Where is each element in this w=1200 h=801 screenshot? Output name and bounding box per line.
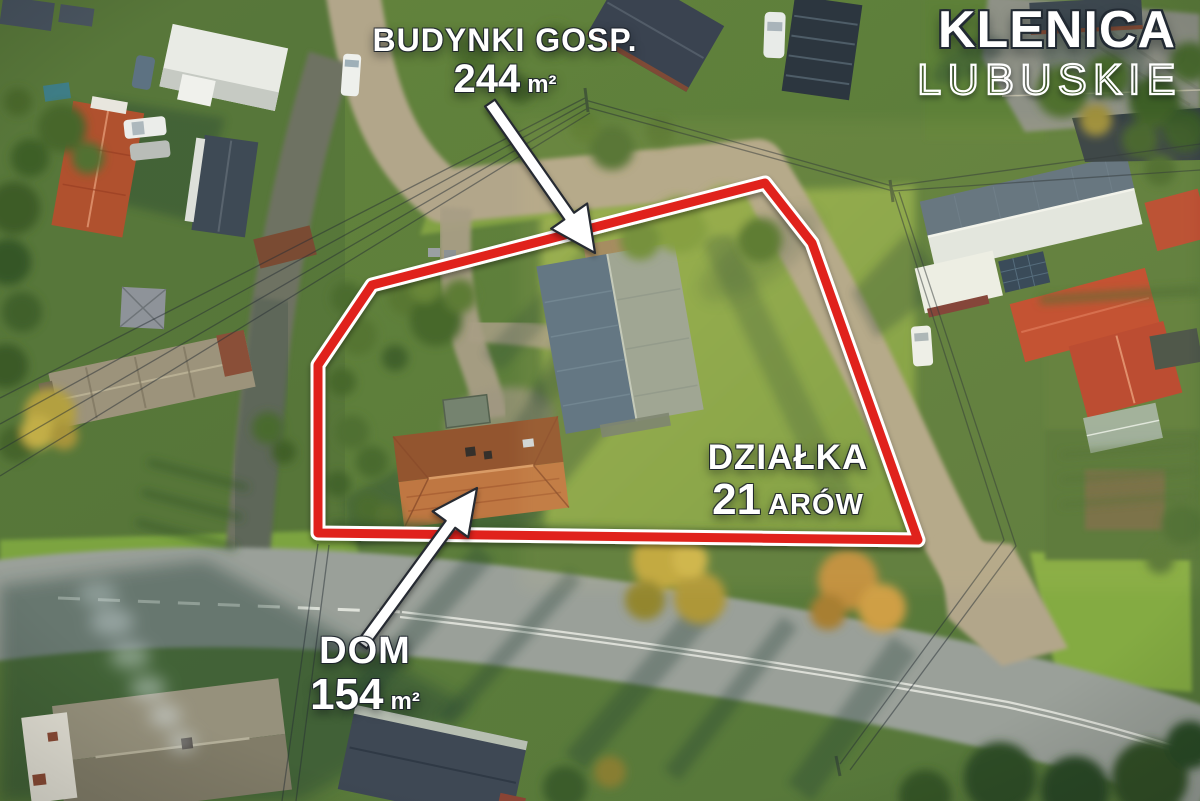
brand-logo: KLENICA LUBUSKIE (917, 4, 1176, 103)
house-area-unit: m² (391, 689, 420, 714)
outbuildings-area-unit: m² (527, 72, 556, 97)
plot-area-value: 21 (712, 477, 761, 523)
outbuildings-label: BUDYNKI GOSP. 244 m² (348, 24, 662, 100)
house-area-value: 154 (310, 672, 383, 718)
brand-logo-title: KLENICA (917, 4, 1176, 57)
vignette (0, 0, 1200, 801)
plot-label-text: DZIAŁKA (688, 440, 888, 477)
brand-logo-subtitle: LUBUSKIE (917, 59, 1182, 103)
house-label-text: DOM (276, 632, 454, 672)
outbuildings-label-text: BUDYNKI GOSP. (348, 24, 662, 58)
outbuildings-area-value: 244 (453, 58, 520, 100)
aerial-photo-scene (0, 0, 1200, 801)
plot-label: DZIAŁKA 21 ARÓW (688, 440, 888, 523)
aerial-listing-photo: BUDYNKI GOSP. 244 m² DZIAŁKA 21 ARÓW DOM… (0, 0, 1200, 801)
house-label: DOM 154 m² (276, 632, 454, 718)
plot-area-unit: ARÓW (768, 490, 864, 520)
